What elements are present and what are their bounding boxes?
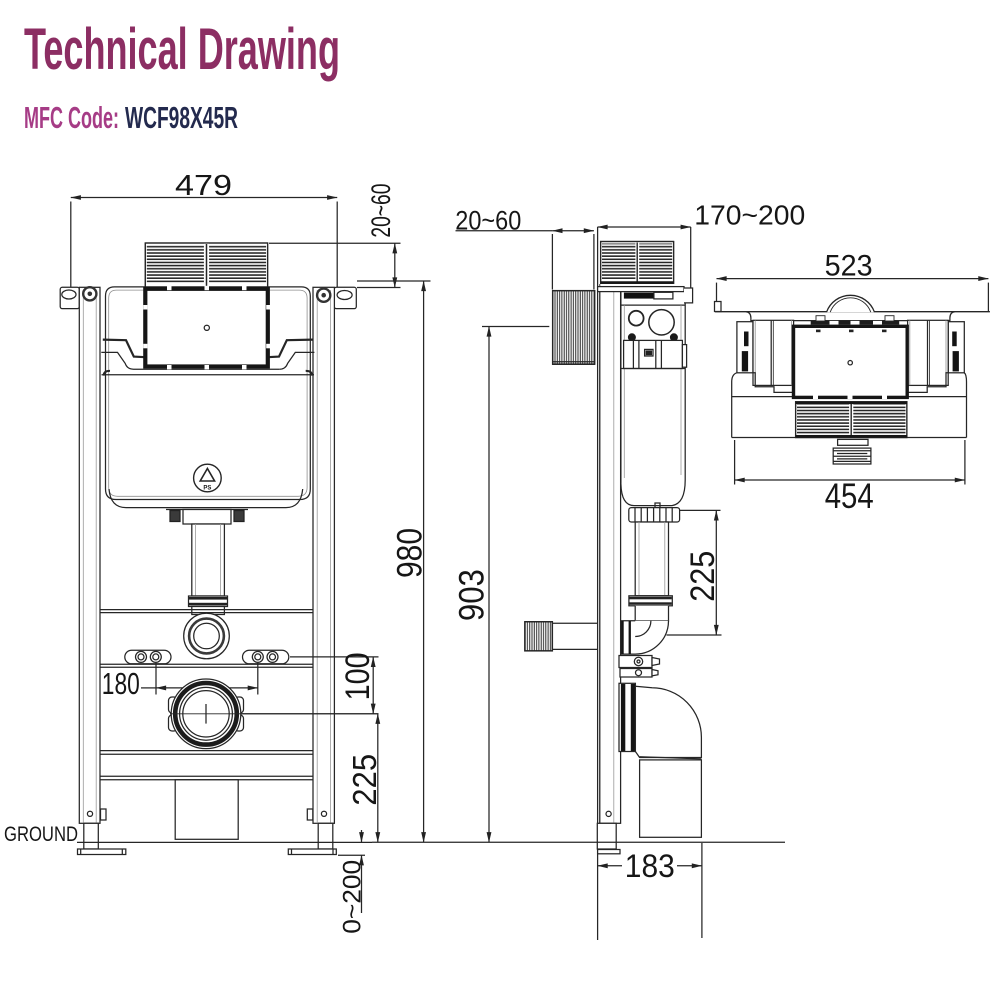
- svg-text:MFC Code:: MFC Code:: [24, 100, 119, 135]
- svg-text:0~200: 0~200: [339, 860, 367, 934]
- svg-text:100: 100: [339, 652, 377, 700]
- svg-text:20~60: 20~60: [366, 184, 396, 238]
- svg-text:170~200: 170~200: [694, 200, 805, 231]
- svg-text:225: 225: [346, 754, 383, 806]
- svg-text:454: 454: [825, 477, 874, 516]
- svg-text:479: 479: [175, 170, 232, 202]
- svg-text:225: 225: [684, 551, 722, 602]
- svg-text:GROUND: GROUND: [4, 822, 78, 846]
- svg-text:183: 183: [625, 848, 675, 884]
- svg-text:Technical Drawing: Technical Drawing: [24, 17, 340, 82]
- svg-text:523: 523: [825, 250, 873, 283]
- svg-text:180: 180: [102, 666, 140, 701]
- svg-text:20~60: 20~60: [455, 206, 521, 236]
- svg-text:WCF98X45R: WCF98X45R: [125, 100, 238, 135]
- svg-text:903: 903: [453, 569, 492, 621]
- svg-text:PS: PS: [203, 486, 211, 492]
- svg-text:980: 980: [391, 528, 430, 578]
